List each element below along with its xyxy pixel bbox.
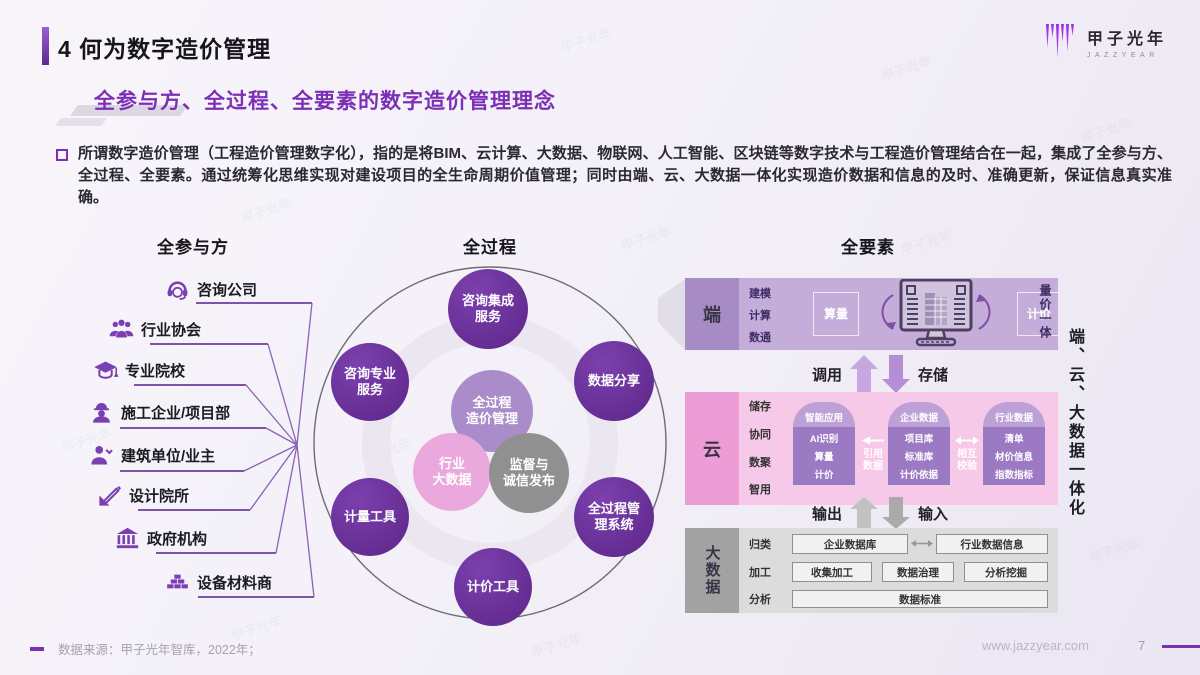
cloud-feature: 协同 <box>749 430 771 441</box>
arch-item: 材价信息 <box>995 449 1033 463</box>
bigdata-band-body: 归类 加工 分析 企业数据库 行业数据信息 收集加工 数据治理 分析挖掘 数据标… <box>739 528 1058 613</box>
participant-label: 咨询公司 <box>197 279 257 300</box>
bigdata-band-label: 大数据 <box>685 528 739 613</box>
up-down-arrows-icon <box>849 497 911 529</box>
cloud-link-mutual-check: 相互 校验 <box>955 424 979 485</box>
participants-heading: 全参与方 <box>138 233 248 258</box>
analysis-mining-box: 分析挖掘 <box>964 562 1048 582</box>
arch-item: 算量 <box>814 449 833 463</box>
client-band-label: 端 <box>685 278 739 350</box>
cloud-band-body: 储存 协同 数聚 智用 智能应用 AI识别 算量 计价 引用 数据 企业数据 项… <box>739 392 1058 505</box>
footer-accent-line <box>1162 645 1200 648</box>
cloud-feature: 储存 <box>749 402 771 413</box>
headset-icon <box>164 276 191 303</box>
participant-label: 行业协会 <box>141 319 201 340</box>
bigdata-band: 大数据 归类 加工 分析 企业数据库 行业数据信息 收集加工 数据治理 分析挖掘… <box>685 528 1058 613</box>
participant-item: 专业院校 <box>92 357 185 384</box>
title-accent-bar <box>42 27 49 65</box>
arch-item: 项目库 <box>905 431 934 445</box>
participant-item: 施工企业/项目部 <box>88 399 230 426</box>
client-band-body: 建模 计算 数通 算量 <box>739 278 1058 350</box>
group-icon <box>108 316 135 343</box>
industry-data-box: 行业数据信息 <box>936 534 1048 554</box>
subtitle-shadow <box>55 118 107 126</box>
footer-accent-dash <box>30 647 44 651</box>
flow-up-label: 调用 <box>812 364 842 385</box>
page-subtitle: 全参与方、全过程、全要素的数字造价管理理念 <box>94 85 556 115</box>
quantity-box: 算量 <box>813 292 859 336</box>
website-link[interactable]: www.jazzyear.com <box>982 638 1089 653</box>
participant-label: 施工企业/项目部 <box>121 402 230 423</box>
collect-process-box: 收集加工 <box>792 562 872 582</box>
process-heading: 全过程 <box>440 233 540 258</box>
process-circle-consult-integration: 咨询集成 服务 <box>448 269 528 349</box>
arch-item: 指数指标 <box>995 467 1033 481</box>
design-icon <box>96 482 123 509</box>
bim-monitor-icon <box>863 279 1009 349</box>
cloud-link-text: 引用 数据 <box>861 449 885 473</box>
double-arrow-icon <box>911 539 933 548</box>
process-circle-pricing-tool: 计价工具 <box>454 548 532 626</box>
participant-label: 设计院所 <box>129 485 189 506</box>
logo-name: 甲子光年 <box>1087 25 1167 49</box>
participant-label: 设备材料商 <box>197 572 272 593</box>
flow-output-input: 输出 输入 <box>812 497 948 529</box>
arch-body: 项目库 标准库 计价依据 <box>888 427 950 485</box>
client-feature: 计算 <box>749 311 771 322</box>
up-down-arrows-icon <box>849 355 911 393</box>
logo-latin: JAZZYEAR <box>1087 52 1167 59</box>
data-source-note: 数据来源：甲子光年智库，2022年； <box>58 639 261 658</box>
flow-down-label: 存储 <box>918 364 948 385</box>
government-icon <box>114 525 141 552</box>
graduation-cap-icon <box>92 357 119 384</box>
arch-item: 清单 <box>1004 431 1023 445</box>
cloud-band-label: 云 <box>685 392 739 505</box>
flow-call-store: 调用 存储 <box>812 355 948 393</box>
arch-header: 企业数据 <box>888 402 950 427</box>
flow-down-label: 输入 <box>918 503 948 524</box>
page-title: 4 何为数字造价管理 <box>58 30 271 64</box>
client-feature: 建模 <box>749 289 771 300</box>
cloud-link-reference: 引用 数据 <box>861 424 885 485</box>
process-circle-supervision: 监督与 诚信发布 <box>489 433 569 513</box>
process-circle-industry-bigdata: 行业 大数据 <box>413 433 491 511</box>
client-band: 端 建模 计算 数通 算量 <box>685 278 1058 350</box>
cloud-arch-industry-data: 行业数据 清单 材价信息 指数指标 <box>983 402 1045 485</box>
cloud-feature: 数聚 <box>749 458 771 469</box>
process-circle-data-sharing: 数据分享 <box>574 341 654 421</box>
participant-item: 建筑单位/业主 <box>88 442 215 469</box>
materials-icon <box>164 569 191 596</box>
participant-label: 政府机构 <box>147 528 207 549</box>
double-arrow-icon <box>955 436 979 445</box>
page-number: 7 <box>1138 638 1145 653</box>
data-governance-box: 数据治理 <box>882 562 954 582</box>
arch-item: 标准库 <box>905 449 934 463</box>
participant-label: 建筑单位/业主 <box>121 445 215 466</box>
process-circle-measure-tool: 计量工具 <box>331 478 409 556</box>
flow-up-label: 输出 <box>812 503 842 524</box>
process-circle-consult-professional: 咨询专业 服务 <box>331 343 409 421</box>
bigdata-feature: 分析 <box>749 595 771 606</box>
cloud-feature: 智用 <box>749 485 771 496</box>
client-side-note: 量价一体 <box>1037 284 1054 340</box>
participant-label: 专业院校 <box>125 360 185 381</box>
data-standard-box: 数据标准 <box>792 590 1048 608</box>
bigdata-feature: 加工 <box>749 568 771 579</box>
arch-body: 清单 材价信息 指数指标 <box>983 427 1045 485</box>
cloud-band: 云 储存 协同 数聚 智用 智能应用 AI识别 算量 计价 引用 数据 企业数据 <box>685 392 1058 505</box>
integration-side-label: 端、云、大数据一体化 <box>1062 328 1086 518</box>
arch-header: 智能应用 <box>793 402 855 427</box>
worker-icon <box>88 399 115 426</box>
cloud-link-text: 相互 校验 <box>955 449 979 473</box>
participant-item: 行业协会 <box>108 316 201 343</box>
slide: 甲子光年 甲子光年 甲子光年 甲子光年 甲子光年 甲子光年 甲子光年 甲子光年 … <box>0 0 1200 675</box>
arch-item: AI识别 <box>810 431 839 445</box>
process-circle-management-system: 全过程管 理系统 <box>574 477 654 557</box>
arch-body: AI识别 算量 计价 <box>793 427 855 485</box>
arch-item: 计价依据 <box>900 467 938 481</box>
arch-item: 计价 <box>814 467 833 481</box>
client-feature: 数通 <box>749 333 771 344</box>
logo-bars-icon <box>1044 22 1078 62</box>
owner-icon <box>88 442 115 469</box>
bigdata-feature: 归类 <box>749 540 771 551</box>
arch-header: 行业数据 <box>983 402 1045 427</box>
cloud-arch-enterprise-data: 企业数据 项目库 标准库 计价依据 <box>888 402 950 485</box>
left-arrow-icon <box>862 436 884 445</box>
bullet-square-icon <box>56 149 68 161</box>
intro-paragraph: 所谓数字造价管理（工程造价管理数字化），指的是将BIM、云计算、大数据、物联网、… <box>78 143 1172 209</box>
brand-logo: 甲子光年 JAZZYEAR <box>1044 22 1167 62</box>
participant-item: 设备材料商 <box>164 569 272 596</box>
participant-item: 政府机构 <box>114 525 207 552</box>
cloud-arch-intelligent-apps: 智能应用 AI识别 算量 计价 <box>793 402 855 485</box>
enterprise-database-box: 企业数据库 <box>792 534 908 554</box>
participant-item: 咨询公司 <box>164 276 257 303</box>
participant-item: 设计院所 <box>96 482 189 509</box>
elements-heading: 全要素 <box>818 233 918 258</box>
